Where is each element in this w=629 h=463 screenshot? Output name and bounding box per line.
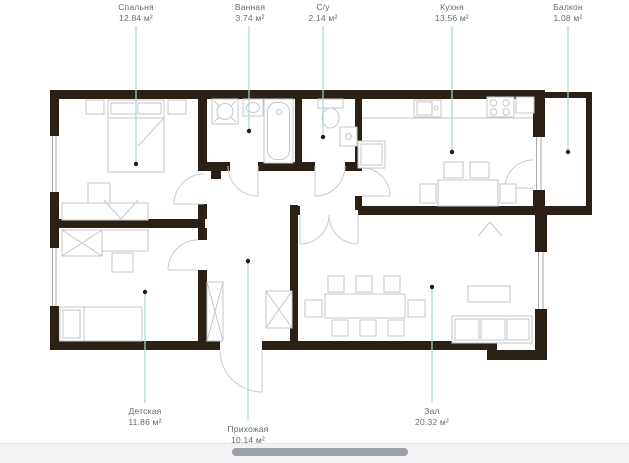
bathroom-door-arc — [228, 166, 258, 196]
wall-bath-wc-divider — [295, 99, 302, 162]
floor-plan-canvas: Спальня 12.84 м² Ванная 3.74 м² С/у 2.14… — [0, 0, 629, 463]
dining-chair — [356, 276, 372, 292]
wall-children-right-b — [198, 270, 207, 341]
room-area-children: 11.86 м² — [128, 417, 161, 427]
room-label-kitchen: Кухня — [440, 2, 464, 12]
worktop — [516, 97, 534, 113]
balcony-door-module — [533, 137, 545, 190]
wall-right-lower-a — [535, 215, 547, 252]
bathroom-furniture — [212, 99, 293, 163]
children-pillow — [63, 310, 80, 338]
room-area-kitchen: 13.56 м² — [435, 13, 469, 23]
floor-plan-page: Спальня 12.84 м² Ванная 3.74 м² С/у 2.14… — [0, 0, 629, 463]
wc-door-arc — [315, 166, 345, 196]
room-label-balcony: Балкон — [553, 2, 583, 12]
washing-machine-drum — [217, 104, 233, 120]
kitchen-door-arc — [362, 168, 390, 196]
tv-console — [468, 286, 510, 302]
horizontal-scrollbar-track[interactable] — [0, 443, 629, 463]
kitchen-furniture — [358, 97, 534, 206]
children-window — [50, 248, 59, 306]
kitchen-chair — [470, 162, 489, 178]
wall-bedroom-door-stub — [198, 204, 207, 219]
dining-table — [325, 294, 405, 318]
wall-living-door-stub — [290, 206, 300, 215]
pillow — [111, 103, 136, 114]
room-label-living: Зал — [424, 406, 439, 416]
kitchen-faucet — [434, 106, 438, 110]
kitchen-table — [438, 180, 498, 206]
wall-bedroom-right — [198, 99, 207, 168]
living-double-door-right-arc — [329, 215, 358, 244]
kitchen-chair — [444, 162, 463, 178]
dining-chair — [408, 300, 425, 317]
room-area-bathroom: 3.74 м² — [236, 13, 265, 23]
wall-top — [50, 90, 545, 99]
room-label-wc: С/у — [316, 2, 330, 12]
wall-bath-bottom-left — [198, 162, 230, 171]
bedroom-furniture — [62, 100, 186, 220]
wall-right-lower-b — [535, 309, 547, 360]
wall-kitchen-bottom — [358, 206, 592, 215]
pillow — [138, 103, 161, 114]
wall-left-upper — [50, 90, 59, 136]
toilet-tank — [318, 99, 343, 108]
room-label-bathroom: Ванная — [235, 2, 266, 12]
dining-chair — [328, 276, 344, 292]
dining-chair — [384, 276, 400, 292]
living-window — [535, 252, 547, 309]
hallway-furniture — [207, 282, 292, 341]
living-furniture — [305, 222, 532, 343]
dining-chair — [360, 320, 376, 336]
wall-left-mid — [50, 192, 59, 248]
children-furniture — [60, 230, 148, 341]
kitchen-chair — [420, 184, 436, 203]
room-label-children: Детская — [129, 406, 162, 416]
dining-chair — [332, 320, 348, 336]
wall-kitchen-left-stub — [355, 196, 362, 210]
dining-chair — [388, 320, 404, 336]
horizontal-scrollbar-thumb[interactable] — [232, 448, 408, 456]
children-desk — [102, 230, 148, 251]
wall-bath-door-jamb — [211, 171, 221, 179]
toilet-bowl — [322, 108, 339, 128]
bedroom-window — [50, 136, 59, 192]
room-label-hallway: Прихожая — [228, 424, 269, 434]
room-label-bedroom: Спальня — [118, 2, 154, 12]
nightstand-left — [86, 100, 104, 114]
children-door-arc — [168, 240, 198, 270]
room-area-balcony: 1.08 м² — [554, 13, 583, 23]
wall-children-right-a — [198, 228, 207, 240]
bathtub-drain — [277, 110, 282, 115]
stool — [88, 183, 110, 203]
room-area-bedroom: 12.84 м² — [119, 13, 153, 23]
entrance-door-arc — [220, 350, 262, 392]
bedroom-door-arc — [174, 174, 204, 204]
room-area-living: 20.32 м² — [415, 417, 449, 427]
wall-right-kitchen — [533, 99, 545, 137]
dining-chair — [305, 300, 322, 317]
children-chair — [112, 253, 133, 272]
wall-bottom-left — [50, 341, 220, 350]
wall-right-mid — [533, 190, 545, 206]
kitchen-chair — [500, 184, 516, 203]
nightstand-right — [168, 100, 186, 114]
living-double-door-left-arc — [300, 215, 329, 244]
tv — [478, 222, 502, 236]
wall-balcony-right — [586, 92, 592, 212]
room-area-wc: 2.14 м² — [309, 13, 338, 23]
bedroom-desk — [62, 203, 148, 220]
